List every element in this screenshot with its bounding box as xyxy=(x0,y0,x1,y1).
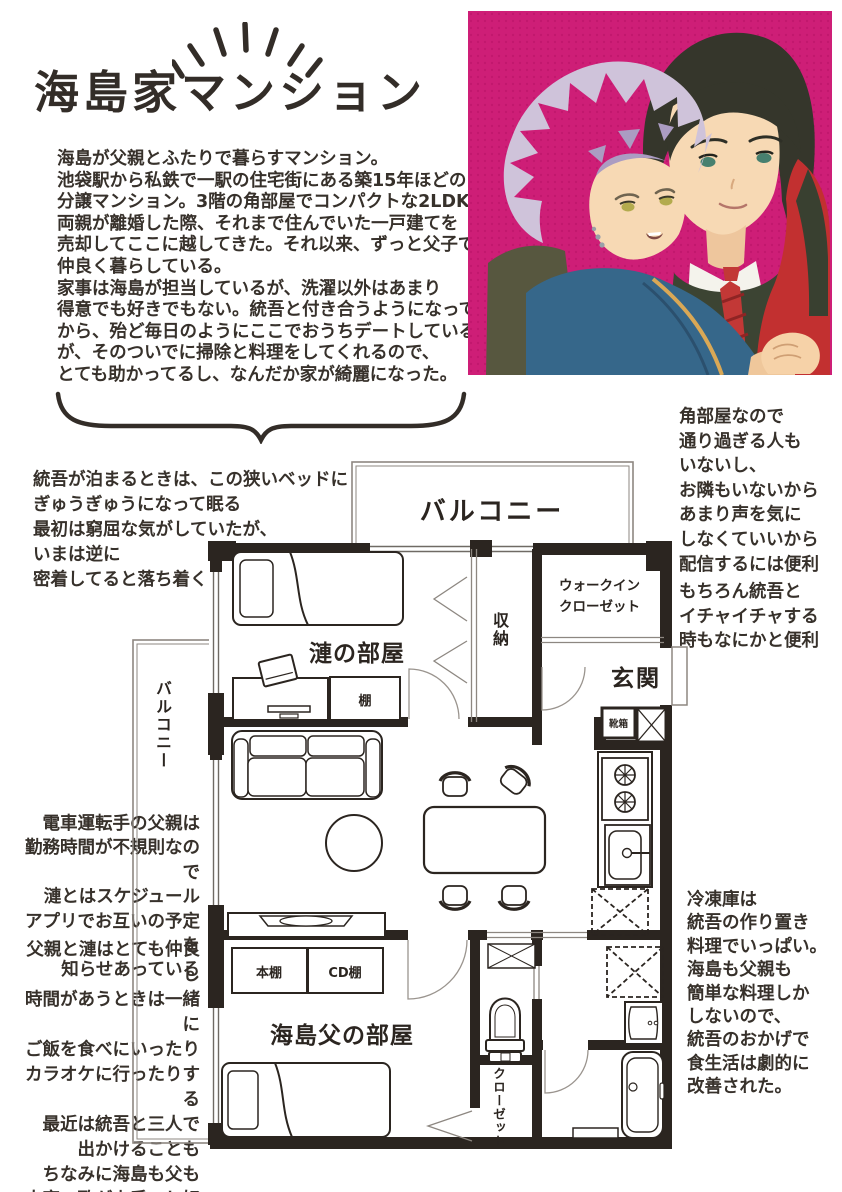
tv-board xyxy=(228,913,385,937)
label-ren-room: 漣の部屋 xyxy=(267,634,447,668)
label-balcony-top: バルコニー xyxy=(402,491,582,528)
kitchen-counter xyxy=(598,752,652,887)
note-corner-room-2: もちろん統吾と イチャイチャする 時もなにかと便利 xyxy=(679,580,819,654)
brace-icon xyxy=(55,390,467,444)
round-rug xyxy=(326,815,382,871)
note-freezer: 冷凍庫は 統吾の作り置き 料理でいっぱい。 海島も父親も 簡単な料理しか しない… xyxy=(687,889,827,1100)
sofa xyxy=(232,731,382,799)
balcony-left xyxy=(133,640,216,1143)
washbasin xyxy=(625,1002,663,1044)
label-bookshelf: 本棚 xyxy=(234,962,304,981)
couple-illustration xyxy=(468,11,832,375)
dining-table xyxy=(424,807,545,873)
label-entrance: 玄関 xyxy=(596,659,676,693)
label-closet: クローゼット xyxy=(489,1062,508,1152)
ren-bed xyxy=(233,552,403,625)
character-profile-page: 海島家マンション 海島が父親とふたりで暮らすマンション。 池袋駅から私鉄で一駅の… xyxy=(0,0,842,1192)
entrance-mat xyxy=(637,708,666,742)
kitchen-sink xyxy=(605,825,650,885)
father-bed xyxy=(222,1063,390,1137)
note-corner-room: 角部屋なので 通り過ぎる人も いないし、 お隣もいないから あまり声を気に しな… xyxy=(679,405,819,577)
label-walk-in-closet: ウォークイン クローゼット xyxy=(534,576,665,618)
bath-mat xyxy=(573,1128,618,1138)
bathtub xyxy=(622,1052,664,1138)
label-shelf: 棚 xyxy=(345,690,385,709)
floorplan xyxy=(120,455,700,1155)
label-shoe-box: 靴箱 xyxy=(601,716,636,730)
label-father-room: 海島父の部屋 xyxy=(232,1016,452,1050)
label-balcony-left: バルコニー xyxy=(150,650,174,800)
label-cd-shelf: CD棚 xyxy=(310,962,380,981)
intro-text: 海島が父親とふたりで暮らすマンション。 池袋駅から私鉄で一駅の住宅街にある築15… xyxy=(57,149,487,387)
label-storage: 収納 xyxy=(487,600,511,660)
page-title: 海島家マンション xyxy=(34,56,426,121)
